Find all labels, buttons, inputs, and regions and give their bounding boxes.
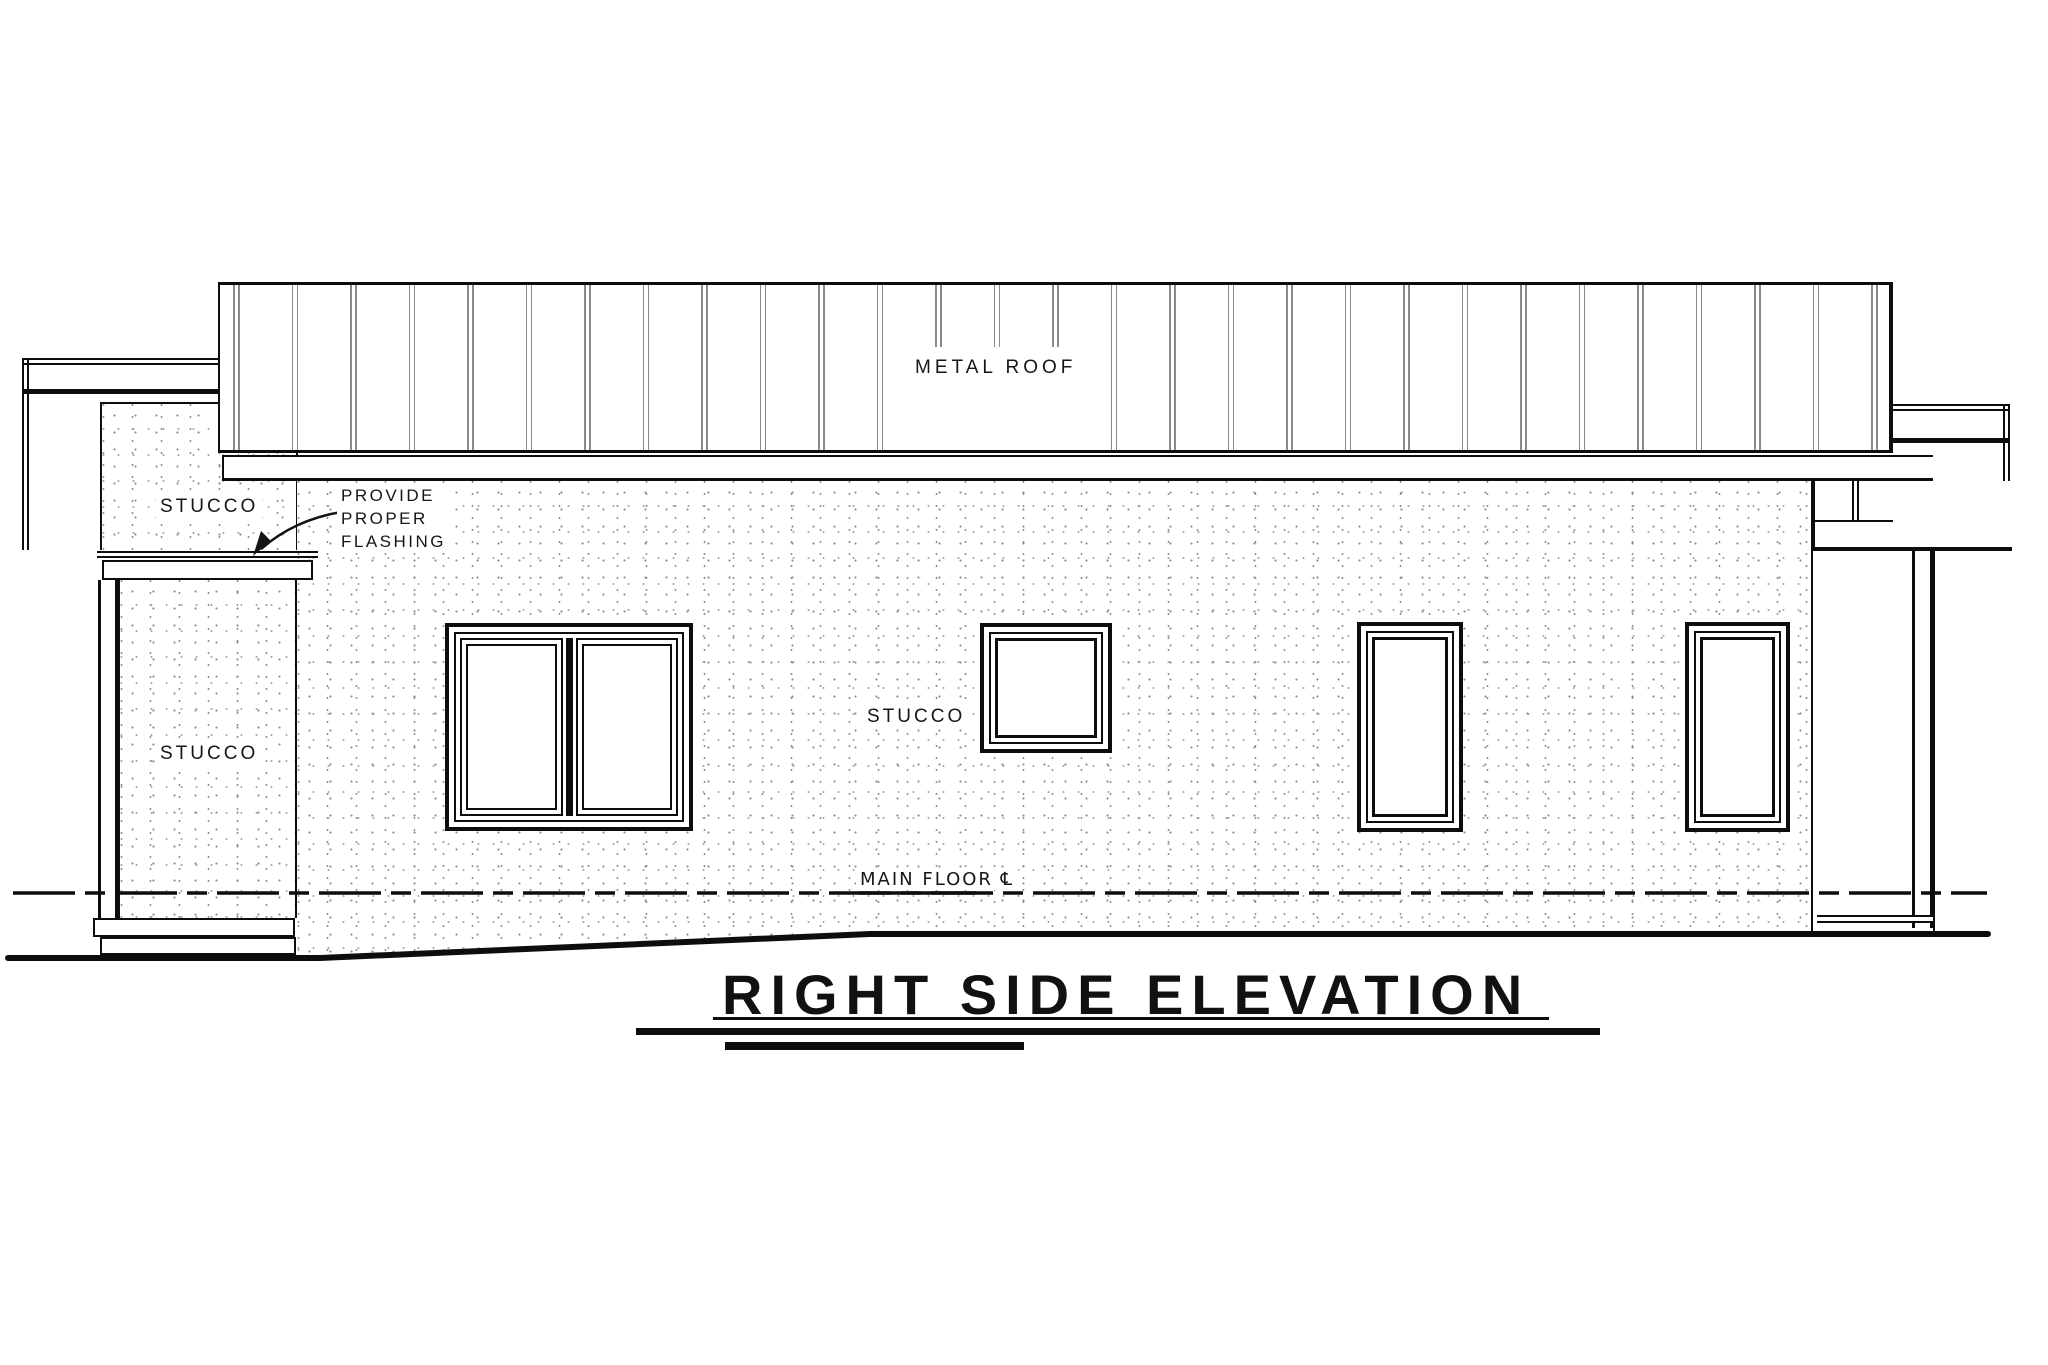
roof-seam: [1584, 285, 1586, 450]
right-porch-edge-vline: [1933, 551, 1935, 931]
roof-seam: [292, 285, 294, 450]
left-wing-roof-top-line-2: [22, 363, 218, 365]
roof-seam: [1228, 285, 1230, 450]
elevation-drawing-sheet: METAL ROOF STUCCO STUCCO STUCCO PROVIDE …: [0, 0, 2048, 1365]
roof-seam: [584, 285, 586, 450]
right-porch-beam: [1813, 481, 2012, 551]
title-underline-short: [725, 1042, 1024, 1050]
left-wing-roof-bottom-edge: [22, 389, 218, 394]
roof-seam: [409, 285, 411, 450]
roof-seam: [1701, 285, 1703, 450]
roof-seam: [238, 285, 240, 450]
porch-beam-cap-line-2: [97, 556, 318, 558]
roof-seam: [823, 285, 825, 450]
porch-beam: [102, 560, 313, 580]
roof-seam: [531, 285, 533, 450]
flashing-note-line-3: FLASHING: [341, 530, 446, 553]
roof-seam: [355, 285, 357, 450]
roof-seam: [701, 285, 703, 450]
title-underline-thick: [636, 1028, 1600, 1035]
porch-base-slab-upper: [93, 918, 295, 937]
roof-seam: [1403, 285, 1405, 450]
window-2-frame: [989, 632, 1103, 744]
window-3-glass: [1372, 637, 1448, 817]
roof-seam: [233, 285, 235, 450]
roof-seam: [1174, 285, 1176, 450]
roof-seam: [1057, 285, 1059, 347]
roof-seam: [1111, 285, 1113, 450]
roof-seam: [643, 285, 645, 450]
roof-seam: [1116, 285, 1118, 450]
window-2-square: [980, 623, 1112, 753]
roof-seam: [1467, 285, 1469, 450]
roof-seam: [1286, 285, 1288, 450]
flashing-note: PROVIDE PROPER FLASHING: [337, 484, 450, 553]
flashing-note-line-1: PROVIDE: [341, 484, 446, 507]
roof-seam: [1462, 285, 1464, 450]
window-1-double: [445, 623, 693, 831]
window-1-left-pane: [460, 638, 563, 816]
roof-seam: [1813, 285, 1815, 450]
roof-seam: [935, 285, 937, 347]
roof-seam: [414, 285, 416, 450]
roof-seam: [1233, 285, 1235, 450]
roof-seam: [1696, 285, 1698, 450]
right-porch-post: [1912, 551, 1933, 928]
roof-seam: [1169, 285, 1171, 450]
roof-seam: [994, 285, 996, 347]
window-1-mullion: [566, 638, 573, 816]
roof-seam: [526, 285, 528, 450]
roof-seam: [1876, 285, 1878, 450]
window-2-glass: [995, 638, 1097, 738]
roof-seam: [706, 285, 708, 450]
porch-beam-cap-line-1: [97, 551, 318, 553]
window-4-frame: [1694, 631, 1781, 823]
stucco-label-main-wall: STUCCO: [863, 705, 969, 729]
window-1-frame: [454, 632, 684, 822]
roof-seam: [297, 285, 299, 450]
roof-bottom-edge: [218, 450, 1893, 453]
roof-seam: [1525, 285, 1527, 450]
left-wing-left-edge-outer: [22, 358, 24, 550]
roof-seam: [999, 285, 1001, 347]
porch-base-slab-lower: [100, 937, 296, 955]
roof-seam: [1350, 285, 1352, 450]
roof-seam: [760, 285, 762, 450]
right-porch-floor-edge: [1817, 915, 1933, 923]
right-porch-beam-hline: [1815, 520, 1893, 522]
stucco-label-upper-left: STUCCO: [156, 495, 262, 519]
roof-seam: [1759, 285, 1761, 450]
roof-seam: [472, 285, 474, 450]
roof-seam: [1408, 285, 1410, 450]
roof-seam: [818, 285, 820, 450]
stucco-label-lower-left: STUCCO: [156, 742, 262, 766]
roof-seam: [1754, 285, 1756, 450]
roof-seam: [1637, 285, 1639, 450]
roof-seam: [882, 285, 884, 450]
roof-seam: [1818, 285, 1820, 450]
main-floor-label: MAIN FLOOR ℄: [856, 869, 1018, 890]
roof-seam: [1520, 285, 1522, 450]
roof-seam: [877, 285, 879, 450]
window-1-left-glass: [466, 644, 557, 810]
left-wing-left-edge-inner: [27, 358, 29, 550]
window-1-right-glass: [582, 644, 673, 810]
window-3-tall: [1357, 622, 1463, 832]
right-porch-beam-seam-1: [1852, 481, 1854, 521]
window-4-glass: [1700, 637, 1775, 817]
right-wing-roof-inner-line: [1893, 409, 2010, 411]
roof-seam: [1871, 285, 1873, 450]
roof-seam: [1345, 285, 1347, 450]
metal-roof-label: METAL ROOF: [915, 357, 1076, 379]
roof-seam: [467, 285, 469, 450]
roof-seam: [1291, 285, 1293, 450]
right-porch-beam-seam-2: [1857, 481, 1859, 521]
window-4-tall: [1685, 622, 1790, 832]
roof-seam: [765, 285, 767, 450]
porch-column-left: [98, 580, 118, 918]
left-wing-roof-top-line-1: [22, 358, 218, 360]
roof-seam: [589, 285, 591, 450]
roof-seam: [1642, 285, 1644, 450]
window-3-frame: [1366, 631, 1454, 823]
roof-seam: [940, 285, 942, 347]
title-underline-thin: [713, 1017, 1549, 1020]
roof-seam: [1052, 285, 1054, 347]
roof-seam: [1579, 285, 1581, 450]
roof-fascia: [222, 455, 1933, 481]
roof-seam: [648, 285, 650, 450]
roof-seam: [350, 285, 352, 450]
flashing-note-line-2: PROPER: [341, 507, 446, 530]
window-1-right-pane: [576, 638, 679, 816]
